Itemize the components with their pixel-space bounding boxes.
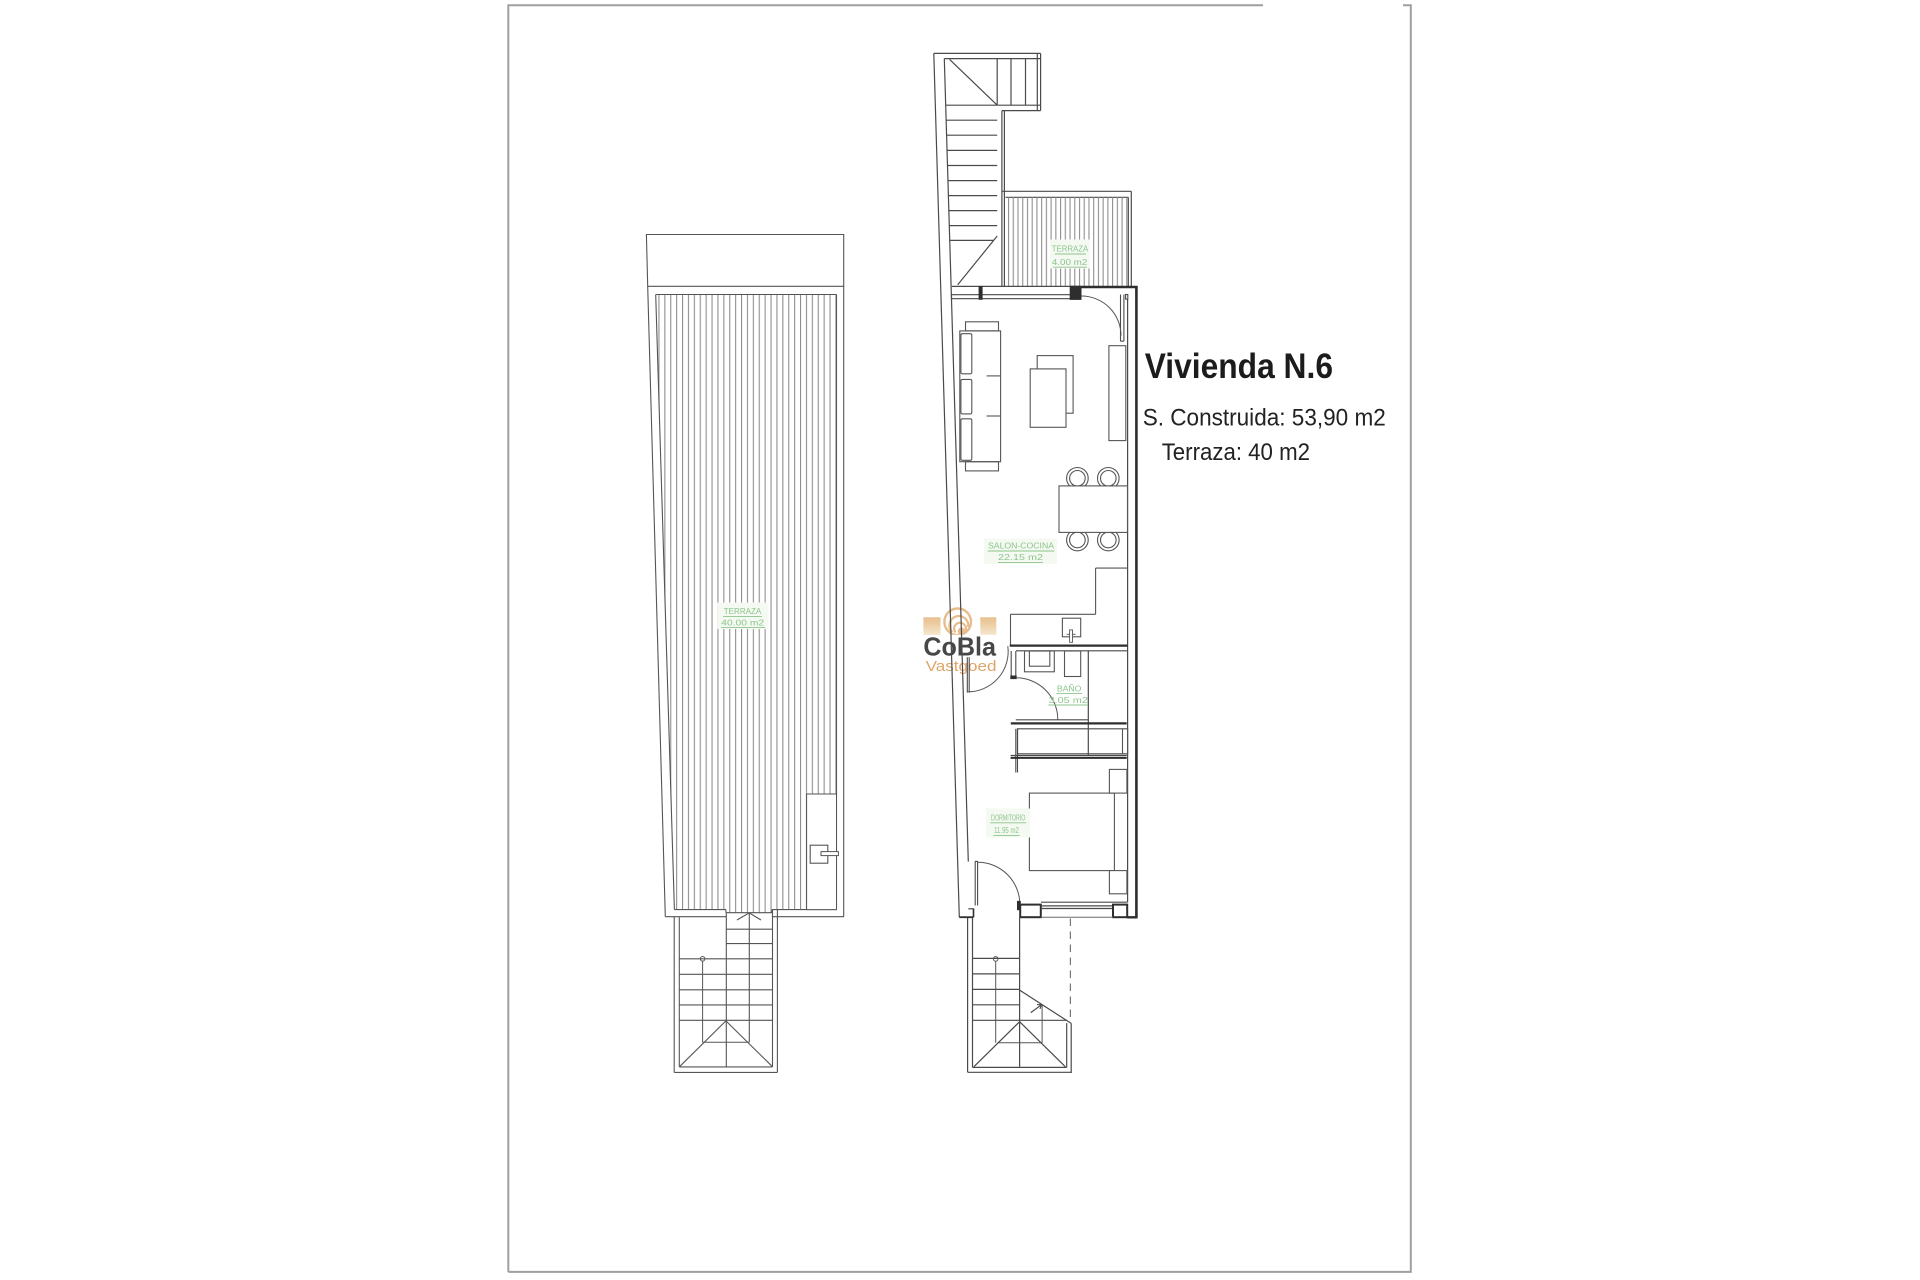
- svg-text:TERRAZA: TERRAZA: [1052, 244, 1089, 254]
- svg-text:11.95 m2: 11.95 m2: [994, 825, 1019, 835]
- svg-text:TERRAZA: TERRAZA: [724, 606, 762, 616]
- svg-text:SALON-COCINA: SALON-COCINA: [988, 541, 1054, 551]
- svg-text:Vivienda N.6: Vivienda N.6: [1145, 347, 1333, 386]
- svg-text:BAÑO: BAÑO: [1057, 683, 1082, 693]
- svg-text:22.15 m2: 22.15 m2: [998, 552, 1043, 562]
- svg-text:S. Construida: 53,90 m2: S. Construida: 53,90 m2: [1143, 404, 1386, 431]
- svg-text:3.05 m2: 3.05 m2: [1049, 695, 1089, 705]
- svg-text:4.00 m2: 4.00 m2: [1052, 257, 1088, 267]
- svg-text:Terraza: 40 m2: Terraza: 40 m2: [1162, 439, 1310, 466]
- svg-text:DORMITORIO: DORMITORIO: [991, 812, 1026, 822]
- svg-text:Vastgoed: Vastgoed: [926, 658, 997, 675]
- svg-text:40.00 m2: 40.00 m2: [721, 617, 764, 627]
